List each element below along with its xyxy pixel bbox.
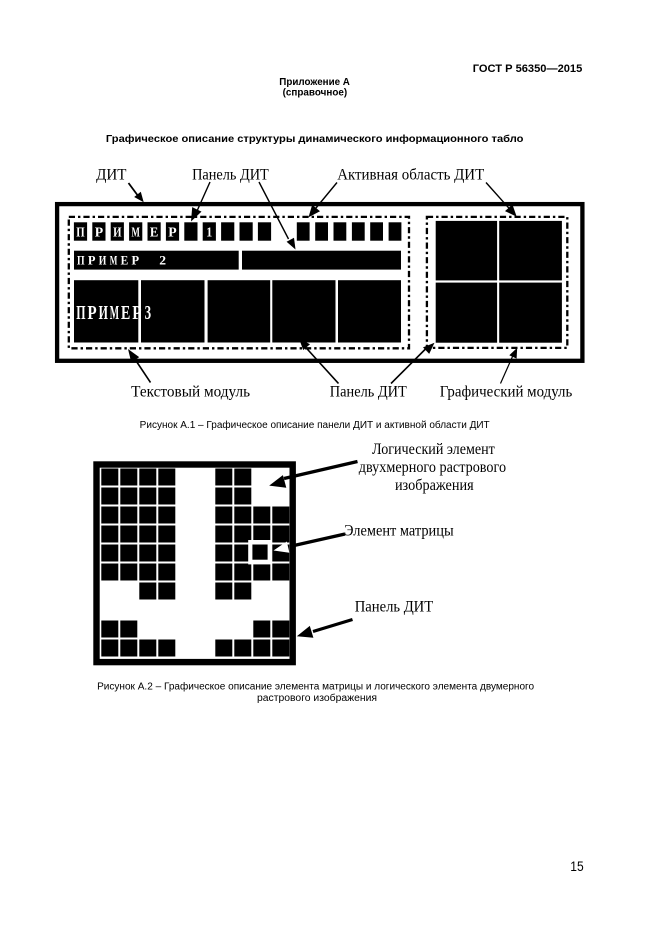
svg-text:Графическое описание структуры: Графическое описание структуры динамичес… xyxy=(106,133,524,145)
svg-text:Приложение А: Приложение А xyxy=(279,77,350,88)
svg-text:Активная область ДИТ: Активная область ДИТ xyxy=(337,166,485,183)
svg-text:И: И xyxy=(99,254,107,268)
svg-text:Рисунок А.1 – Графическое опис: Рисунок А.1 – Графическое описание панел… xyxy=(140,420,490,431)
svg-text:Р: Р xyxy=(87,302,96,324)
svg-text:М: М xyxy=(110,302,119,324)
svg-text:Р: Р xyxy=(132,302,141,324)
svg-text:П: П xyxy=(76,226,84,241)
svg-text:М: М xyxy=(132,226,140,241)
svg-text:Р: Р xyxy=(95,226,104,241)
svg-text:Панель ДИТ: Панель ДИТ xyxy=(355,599,434,616)
svg-text:Логический элемент: Логический элемент xyxy=(372,441,495,458)
svg-text:Е: Е xyxy=(121,254,129,268)
svg-text:изображения: изображения xyxy=(395,477,474,494)
svg-text:Рисунок А.2 – Графическое опис: Рисунок А.2 – Графическое описание элеме… xyxy=(97,681,534,692)
svg-text:Текстовый модуль: Текстовый модуль xyxy=(131,383,250,400)
svg-text:Е: Е xyxy=(121,302,130,324)
svg-text:1: 1 xyxy=(206,226,212,241)
svg-text:Р: Р xyxy=(88,254,96,268)
svg-text:И: И xyxy=(99,302,108,324)
svg-text:3: 3 xyxy=(145,302,152,324)
svg-text:растрового изображения: растрового изображения xyxy=(257,693,377,704)
svg-text:ГОСТ Р 56350—2015: ГОСТ Р 56350—2015 xyxy=(473,63,583,75)
svg-text:М: М xyxy=(110,254,118,268)
svg-text:2: 2 xyxy=(159,254,166,268)
svg-text:Панель ДИТ: Панель ДИТ xyxy=(330,384,408,401)
svg-text:Панель ДИТ: Панель ДИТ xyxy=(192,166,269,183)
svg-text:Элемент матрицы: Элемент матрицы xyxy=(344,522,454,539)
svg-text:П: П xyxy=(77,254,85,268)
svg-text:П: П xyxy=(76,302,85,324)
svg-text:Р: Р xyxy=(168,226,177,241)
svg-text:двухмерного растрового: двухмерного растрового xyxy=(359,459,507,476)
svg-text:Р: Р xyxy=(132,254,140,268)
svg-text:И: И xyxy=(113,226,121,241)
svg-text:15: 15 xyxy=(570,859,583,874)
svg-text:Е: Е xyxy=(150,226,158,241)
svg-text:Графический модуль: Графический модуль xyxy=(440,384,573,401)
svg-text:ДИТ: ДИТ xyxy=(96,166,127,183)
svg-text:(справочное): (справочное) xyxy=(283,88,348,99)
